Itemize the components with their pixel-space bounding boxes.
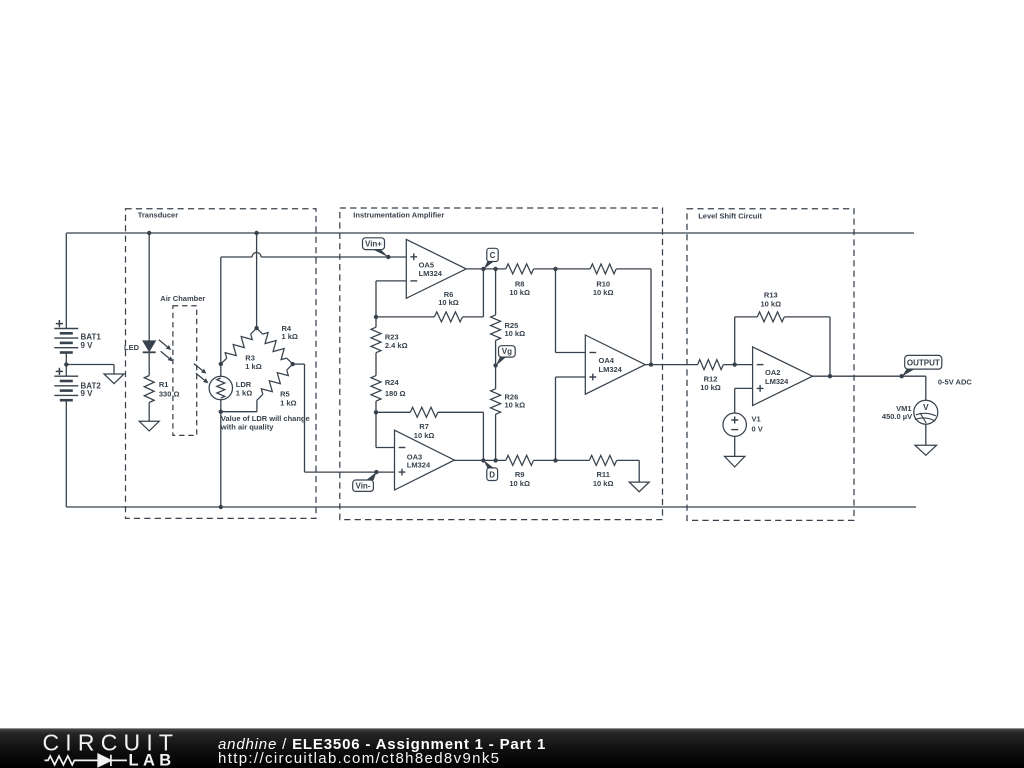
svg-text:R11: R11 (597, 470, 610, 479)
svg-text:R12: R12 (704, 374, 718, 383)
svg-text:10 kΩ: 10 kΩ (509, 479, 530, 488)
svg-text:http://circuitlab.com/ct8h8ed8: http://circuitlab.com/ct8h8ed8v9nk5 (218, 750, 500, 767)
svg-text:R13: R13 (764, 290, 778, 299)
svg-text:1 kΩ: 1 kΩ (236, 389, 252, 398)
svg-text:OA2: OA2 (765, 368, 780, 377)
svg-text:V: V (923, 402, 929, 412)
svg-text:10 kΩ: 10 kΩ (593, 479, 614, 488)
svg-text:LAB: LAB (129, 752, 176, 768)
svg-text:450.0 µV: 450.0 µV (882, 412, 912, 421)
svg-text:Vin-: Vin- (356, 481, 371, 490)
svg-text:180 Ω: 180 Ω (385, 389, 406, 398)
svg-text:LM324: LM324 (407, 461, 431, 470)
svg-text:9 V: 9 V (81, 389, 94, 398)
svg-text:10 kΩ: 10 kΩ (509, 288, 530, 297)
svg-text:10 kΩ: 10 kΩ (593, 288, 614, 297)
svg-text:Vin+: Vin+ (365, 239, 382, 248)
svg-text:R1: R1 (159, 380, 169, 389)
svg-text:Instrumentation Amplifier: Instrumentation Amplifier (353, 210, 444, 219)
svg-text:R3: R3 (245, 353, 255, 362)
svg-text:R8: R8 (515, 279, 525, 288)
svg-text:10 kΩ: 10 kΩ (414, 431, 435, 440)
svg-text:Transducer: Transducer (138, 211, 179, 220)
svg-text:10 kΩ: 10 kΩ (760, 299, 781, 308)
svg-text:OA4: OA4 (599, 356, 615, 365)
svg-text:LM324: LM324 (765, 377, 789, 386)
svg-text:LM324: LM324 (599, 365, 623, 374)
svg-text:0-5V ADC: 0-5V ADC (938, 378, 972, 387)
svg-text:D: D (489, 470, 495, 479)
svg-text:Vg: Vg (502, 347, 512, 356)
svg-text:9 V: 9 V (81, 341, 94, 350)
svg-text:0 V: 0 V (752, 424, 763, 433)
svg-text:2.4 kΩ: 2.4 kΩ (385, 341, 408, 350)
svg-text:R7: R7 (419, 422, 429, 431)
svg-text:R23: R23 (385, 332, 399, 341)
svg-text:R10: R10 (596, 279, 610, 288)
svg-text:R5: R5 (280, 390, 290, 399)
svg-text:C: C (490, 251, 496, 260)
svg-text:Level Shift Circuit: Level Shift Circuit (698, 212, 762, 221)
svg-text:1 kΩ: 1 kΩ (282, 332, 298, 341)
svg-text:10 kΩ: 10 kΩ (505, 401, 526, 410)
svg-text:10 kΩ: 10 kΩ (438, 298, 459, 307)
svg-text:LED: LED (124, 343, 140, 352)
svg-text:1 kΩ: 1 kΩ (280, 398, 296, 407)
svg-text:LM324: LM324 (419, 269, 443, 278)
svg-text:R9: R9 (515, 470, 525, 479)
svg-text:V1: V1 (752, 415, 761, 424)
svg-text:10 kΩ: 10 kΩ (505, 329, 526, 338)
svg-text:10 kΩ: 10 kΩ (700, 383, 721, 392)
svg-text:OUTPUT: OUTPUT (907, 358, 940, 367)
svg-text:330 Ω: 330 Ω (159, 390, 180, 399)
svg-text:with air quality: with air quality (220, 423, 274, 432)
svg-text:1 kΩ: 1 kΩ (245, 362, 261, 371)
svg-text:Value of LDR will change: Value of LDR will change (221, 414, 310, 423)
svg-text:Air Chamber: Air Chamber (160, 294, 205, 303)
svg-text:R24: R24 (385, 378, 400, 387)
